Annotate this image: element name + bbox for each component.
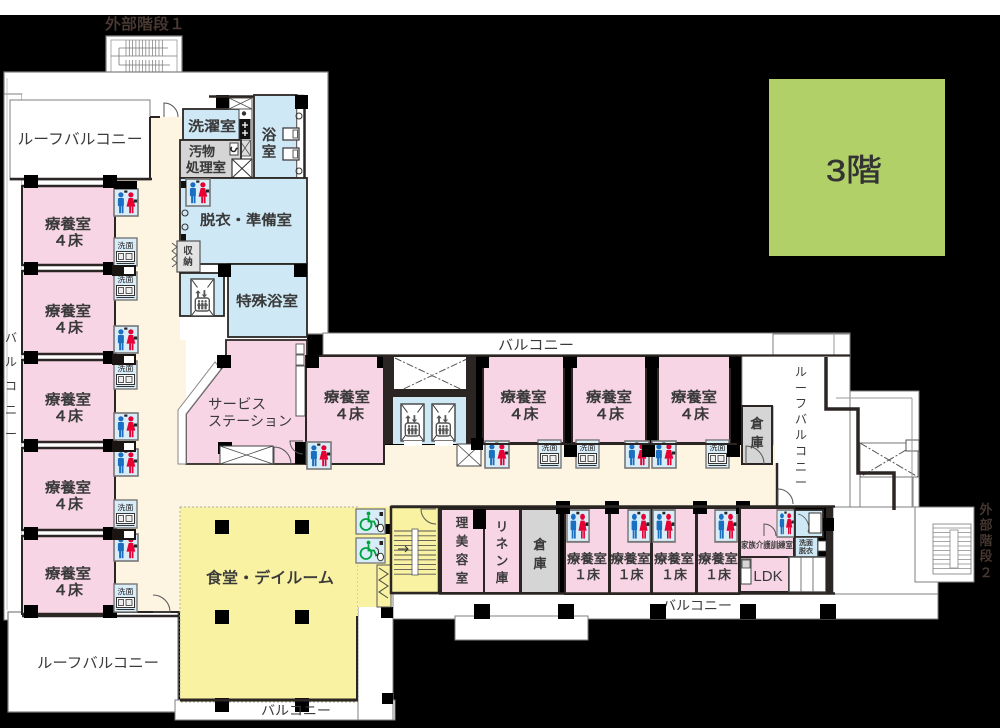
- svg-text:１床: １床: [574, 568, 601, 582]
- svg-text:フ: フ: [795, 397, 807, 411]
- svg-text:庫: 庫: [533, 556, 546, 571]
- svg-text:段: 段: [979, 549, 992, 564]
- svg-text:ー: ー: [5, 427, 17, 441]
- svg-text:１床: １床: [661, 568, 688, 582]
- svg-text:バルコニー: バルコニー: [498, 337, 574, 353]
- svg-text:バルコニー: バルコニー: [261, 703, 331, 718]
- svg-text:庫: 庫: [750, 435, 763, 450]
- svg-text:療養室: 療養室: [586, 389, 632, 405]
- svg-text:室: 室: [262, 144, 277, 161]
- svg-text:４床: ４床: [53, 408, 83, 424]
- svg-text:浴: 浴: [262, 127, 277, 144]
- svg-text:４床: ４床: [53, 233, 83, 249]
- svg-text:療養室: 療養室: [45, 480, 91, 496]
- svg-text:療養室: 療養室: [698, 551, 738, 566]
- svg-text:バ: バ: [5, 331, 17, 345]
- svg-text:バルコニー: バルコニー: [662, 598, 732, 613]
- svg-text:療養室: 療養室: [654, 551, 694, 566]
- svg-text:４床: ４床: [334, 406, 364, 422]
- svg-text:４床: ４床: [679, 406, 709, 422]
- svg-text:ル: ル: [795, 428, 807, 442]
- svg-text:４床: ４床: [53, 496, 83, 512]
- svg-text:理: 理: [456, 516, 469, 530]
- svg-text:療養室: 療養室: [611, 551, 651, 566]
- svg-text:１床: １床: [618, 568, 645, 582]
- svg-text:ン: ン: [496, 554, 509, 568]
- svg-text:倉: 倉: [750, 416, 763, 431]
- svg-text:脱衣・準備室: 脱衣・準備室: [200, 212, 292, 228]
- svg-text:ニ: ニ: [5, 403, 17, 417]
- svg-text:４床: ４床: [53, 582, 83, 598]
- svg-text:リ: リ: [496, 520, 509, 534]
- svg-text:１床: １床: [705, 568, 732, 582]
- svg-text:ル: ル: [795, 365, 807, 379]
- svg-text:美: 美: [456, 535, 469, 549]
- svg-text:療養室: 療養室: [501, 389, 547, 405]
- svg-text:療養室: 療養室: [45, 392, 91, 408]
- svg-text:ルーフバルコニー: ルーフバルコニー: [18, 131, 143, 148]
- svg-text:バ: バ: [795, 412, 807, 426]
- svg-text:療養室: 療養室: [45, 566, 91, 582]
- svg-text:LDK: LDK: [753, 568, 782, 585]
- svg-text:庫: 庫: [496, 571, 509, 585]
- svg-text:４床: ４床: [509, 406, 539, 422]
- svg-text:特殊浴室: 特殊浴室: [236, 293, 298, 309]
- svg-text:処理室: 処理室: [186, 160, 226, 175]
- svg-text:汚物: 汚物: [189, 144, 215, 159]
- svg-text:外部階段１: 外部階段１: [105, 16, 185, 33]
- svg-text:４床: ４床: [594, 406, 624, 422]
- svg-text:２: ２: [979, 565, 992, 580]
- svg-text:階: 階: [979, 533, 992, 548]
- svg-text:室: 室: [456, 571, 469, 586]
- svg-text:療養室: 療養室: [671, 389, 717, 405]
- svg-text:４床: ４床: [53, 320, 83, 336]
- svg-text:コ: コ: [795, 444, 807, 458]
- svg-text:納: 納: [183, 256, 193, 268]
- svg-text:療養室: 療養室: [324, 389, 370, 405]
- svg-text:療養室: 療養室: [45, 303, 91, 319]
- svg-text:倉: 倉: [533, 537, 546, 552]
- svg-text:ルーフバルコニー: ルーフバルコニー: [37, 656, 159, 672]
- svg-text:ー: ー: [795, 476, 807, 490]
- svg-text:ニ: ニ: [795, 460, 807, 474]
- svg-text:サービス: サービス: [208, 396, 266, 412]
- svg-text:3階: 3階: [826, 153, 882, 188]
- svg-text:洗面: 洗面: [799, 538, 813, 547]
- svg-text:ル: ル: [5, 355, 17, 369]
- svg-text:収: 収: [183, 245, 193, 257]
- svg-text:部: 部: [979, 518, 992, 533]
- svg-text:コ: コ: [5, 379, 17, 393]
- svg-text:ネ: ネ: [496, 537, 509, 551]
- svg-text:食堂・デイルーム: 食堂・デイルーム: [206, 568, 334, 587]
- svg-text:洗濯室: 洗濯室: [188, 118, 236, 134]
- svg-text:家族介護訓練室: 家族介護訓練室: [741, 540, 793, 550]
- svg-text:脱衣: 脱衣: [799, 546, 813, 555]
- svg-text:療養室: 療養室: [45, 216, 91, 232]
- svg-text:ー: ー: [795, 381, 807, 395]
- svg-text:外: 外: [979, 502, 992, 517]
- svg-text:療養室: 療養室: [567, 551, 607, 566]
- svg-text:容: 容: [456, 552, 469, 567]
- svg-text:ステーション: ステーション: [208, 413, 292, 429]
